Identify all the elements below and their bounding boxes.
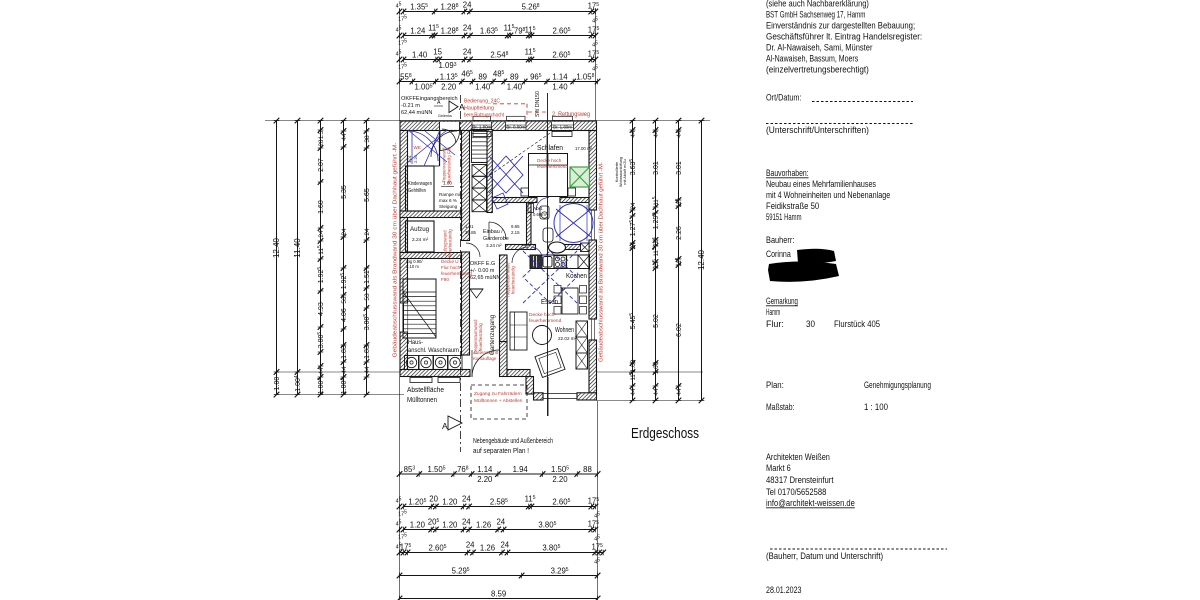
svg-text:2.15: 2.15 — [511, 230, 520, 235]
svg-text:1.20: 1.20 — [442, 497, 458, 506]
svg-text:62,44 müNN: 62,44 müNN — [401, 110, 432, 116]
svg-text:1.94: 1.94 — [513, 465, 529, 474]
svg-text:22.02 m²: 22.02 m² — [558, 336, 577, 341]
svg-text:A: A — [442, 421, 448, 431]
svg-text:feuerhemmend: feuerhemmend — [537, 164, 568, 169]
svg-text:24: 24 — [631, 242, 637, 249]
svg-text:Geschäftsführer lt. Eintrag Ha: Geschäftsführer lt. Eintrag Handelsregis… — [766, 32, 922, 43]
svg-text:Feidikstraße 50: Feidikstraße 50 — [766, 201, 819, 212]
svg-text:Decke hoch: Decke hoch — [537, 158, 562, 163]
svg-text:2.20: 2.20 — [552, 475, 568, 484]
svg-text:3.24 m²: 3.24 m² — [486, 243, 502, 248]
svg-text:3.01: 3.01 — [653, 161, 660, 175]
svg-text:(siehe auch Nachbarerklärung): (siehe auch Nachbarerklärung) — [766, 0, 869, 10]
svg-text:48317 Drensteinfurt: 48317 Drensteinfurt — [766, 475, 834, 486]
svg-text:1.26: 1.26 — [476, 520, 491, 529]
svg-text:SW DN150: SW DN150 — [535, 91, 541, 117]
svg-text:Zugang zu Fahrrädern: Zugang zu Fahrrädern — [474, 391, 522, 397]
svg-text:Einbau /: Einbau / — [483, 229, 503, 235]
svg-text:Kinderwagen: Kinderwagen — [408, 181, 432, 187]
svg-text:Essen: Essen — [541, 297, 558, 306]
svg-text:59151 Hamm: 59151 Hamm — [766, 212, 802, 223]
svg-text:A: A — [437, 100, 441, 106]
svg-text:5.65: 5.65 — [364, 188, 371, 202]
svg-text:Br. 1.80m: Br. 1.80m — [553, 125, 572, 130]
svg-text:44: 44 — [318, 367, 325, 375]
svg-text:Br. 0.80m: Br. 0.80m — [506, 125, 525, 130]
svg-text:5.35: 5.35 — [341, 185, 348, 199]
svg-text:OKFFEingangsbereich: OKFFEingangsbereich — [401, 96, 458, 102]
svg-text:Mülltonnen: Mülltonnen — [407, 395, 437, 404]
svg-text:max 6 %: max 6 % — [439, 198, 457, 203]
svg-text:feuerbeständig: feuerbeständig — [511, 265, 516, 293]
svg-text:24: 24 — [462, 494, 471, 503]
svg-text:2.26: 2.26 — [413, 154, 418, 163]
svg-text:1.26: 1.26 — [480, 543, 495, 552]
svg-text:2.24 m²: 2.24 m² — [412, 237, 429, 243]
svg-text:24: 24 — [631, 202, 637, 209]
svg-text:1.5: 1.5 — [319, 130, 325, 139]
svg-text:89: 89 — [478, 72, 487, 81]
svg-text:Tel 0170/5652588: Tel 0170/5652588 — [766, 487, 826, 498]
svg-text:3.01: 3.01 — [676, 161, 683, 175]
svg-text:Flurstück 405: Flurstück 405 — [834, 319, 880, 330]
svg-text:mit Abluft m/Zu: mit Abluft m/Zu — [623, 159, 627, 184]
svg-text:1.20: 1.20 — [410, 520, 426, 529]
svg-text:1.14: 1.14 — [552, 72, 568, 81]
svg-text:1.01: 1.01 — [407, 154, 412, 163]
svg-text:Außenauftritt: Außenauftritt — [473, 350, 499, 355]
svg-text:1.40: 1.40 — [475, 83, 491, 92]
svg-text:Decke U: Decke U — [441, 259, 459, 264]
svg-text:2.10 m: 2.10 m — [406, 264, 419, 269]
svg-text:1.20: 1.20 — [442, 520, 458, 529]
svg-text:44: 44 — [630, 388, 637, 396]
svg-text:24: 24 — [318, 230, 325, 238]
svg-text:12.40: 12.40 — [697, 249, 706, 270]
svg-text:Rampe mit: Rampe mit — [439, 192, 462, 197]
svg-text:44: 44 — [364, 366, 371, 374]
svg-text:Nebengebäude und Außenbereich: Nebengebäude und Außenbereich — [473, 436, 553, 445]
svg-text:28.01.2023: 28.01.2023 — [766, 585, 802, 596]
svg-text:Erdgeschoss: Erdgeschoss — [631, 426, 699, 442]
svg-text:44: 44 — [676, 130, 683, 138]
svg-text:Kursauflage: Kursauflage — [473, 356, 497, 361]
svg-text:feuerbeständig: feuerbeständig — [448, 228, 453, 256]
svg-text:Steigung: Steigung — [439, 204, 458, 209]
svg-text:44: 44 — [341, 366, 348, 374]
svg-text:Plan:: Plan: — [766, 380, 784, 391]
svg-text:feuerbeständig F30: feuerbeständig F30 — [447, 146, 452, 183]
svg-text:-0.21 m: -0.21 m — [401, 103, 420, 109]
svg-text:feuerbeständig: feuerbeständig — [478, 322, 483, 350]
svg-text:2.20: 2.20 — [441, 83, 457, 92]
svg-text:24: 24 — [496, 517, 505, 526]
svg-text:F90: F90 — [441, 277, 449, 282]
svg-text:Mülltonnen + Abstellen: Mülltonnen + Abstellen — [474, 398, 523, 404]
svg-text:24: 24 — [341, 228, 348, 236]
svg-text:2. Rettungsweg: 2. Rettungsweg — [552, 111, 590, 118]
svg-text:Architekten Weißen: Architekten Weißen — [766, 452, 830, 463]
svg-text:(Bauherr, Datum und Unterschri: (Bauherr, Datum und Unterschrift) — [766, 551, 883, 562]
svg-text:Flur hoch: Flur hoch — [441, 265, 461, 270]
svg-text:24: 24 — [463, 47, 472, 56]
svg-text:Br. 1.80m: Br. 1.80m — [472, 125, 491, 130]
svg-text:0.60 m²: 0.60 m² — [533, 212, 548, 217]
svg-text:24: 24 — [463, 23, 472, 32]
svg-text:44: 44 — [630, 130, 637, 138]
svg-text:62,65 müNN: 62,65 müNN — [470, 275, 500, 281]
svg-text:Gebäudeabschlusswand als Brand: Gebäudeabschlusswand als Brandwand 30 cm… — [393, 142, 399, 357]
svg-text:+/- 0.00 m: +/- 0.00 m — [470, 268, 495, 274]
svg-text:Genehmigungsplanung: Genehmigungsplanung — [864, 380, 931, 391]
svg-text:88: 88 — [583, 465, 592, 474]
svg-text:Gehhilfen: Gehhilfen — [408, 188, 426, 194]
svg-text:auf separaten Plan !: auf separaten Plan ! — [473, 446, 529, 455]
svg-text:6.02: 6.02 — [676, 323, 683, 337]
svg-text:9.85: 9.85 — [511, 224, 520, 229]
svg-text:53: 53 — [341, 296, 348, 304]
svg-text:28: 28 — [319, 139, 325, 146]
svg-text:Bauherr:: Bauherr: — [766, 235, 794, 246]
svg-text:bere Rutzugschacht: bere Rutzugschacht — [464, 113, 505, 119]
svg-text:Gebäudeabschlusswand als Brand: Gebäudeabschlusswand als Brandwand 30 cm… — [599, 162, 605, 362]
svg-text:Dr. Al-Nawaiseh, Sami, Münster: Dr. Al-Nawaiseh, Sami, Münster — [766, 43, 873, 54]
svg-text:Corinna: Corinna — [766, 249, 791, 260]
svg-text:Hamm: Hamm — [766, 307, 780, 318]
svg-text:Al-Nawaiseh, Bassum, Moers: Al-Nawaiseh, Bassum, Moers — [766, 54, 858, 65]
svg-text:12.40: 12.40 — [272, 237, 281, 258]
svg-text:1.60: 1.60 — [318, 200, 325, 214]
svg-text:1.83: 1.83 — [341, 345, 348, 359]
svg-text:2.07: 2.07 — [318, 158, 325, 172]
svg-text:11.40: 11.40 — [293, 238, 302, 258]
svg-text:Ort/Datum:: Ort/Datum: — [766, 93, 802, 104]
svg-text:Hauptleitung: Hauptleitung — [464, 106, 494, 112]
svg-text:Abst.: Abst. — [533, 206, 543, 211]
svg-text:44: 44 — [653, 130, 660, 138]
svg-text:1.40: 1.40 — [507, 83, 523, 92]
svg-text:(Unterschrift/Unterschriften): (Unterschrift/Unterschriften) — [766, 125, 869, 136]
svg-text:24: 24 — [364, 228, 371, 236]
svg-text:anschl. Waschraum: anschl. Waschraum — [408, 347, 459, 354]
svg-text:1.40: 1.40 — [412, 50, 428, 59]
svg-text:1.24: 1.24 — [410, 26, 426, 35]
svg-text:Einverständnis zur dargestellt: Einverständnis zur dargestellten Bebauun… — [766, 21, 915, 32]
svg-text:1.01: 1.01 — [465, 224, 474, 229]
svg-text:24: 24 — [500, 540, 509, 549]
svg-text:2.20: 2.20 — [477, 475, 493, 484]
svg-text:24: 24 — [463, 0, 472, 9]
svg-text:Maßstab:: Maßstab: — [766, 402, 794, 413]
svg-text:Schlafen: Schlafen — [537, 143, 563, 152]
svg-text:1.51: 1.51 — [364, 270, 371, 284]
svg-text:1.40: 1.40 — [552, 83, 568, 92]
svg-text:feuerhemmend: feuerhemmend — [441, 271, 472, 276]
svg-text:44: 44 — [341, 133, 348, 141]
svg-text:30: 30 — [806, 319, 815, 330]
svg-text:Wohnen: Wohnen — [555, 325, 574, 334]
svg-text:1 : 100: 1 : 100 — [864, 402, 888, 413]
svg-text:WE: WE — [414, 145, 421, 150]
svg-text:Aufzug: Aufzug — [410, 226, 430, 233]
svg-text:Haus-: Haus- — [408, 339, 423, 346]
svg-text:(einzelvertretungsberechtigt): (einzelvertretungsberechtigt) — [766, 65, 869, 76]
svg-text:1.00: 1.00 — [274, 377, 281, 391]
svg-text:Abstellfläche: Abstellfläche — [407, 385, 444, 394]
svg-text:15: 15 — [433, 47, 442, 56]
svg-text:53: 53 — [364, 293, 371, 301]
svg-text:17.00 m²: 17.00 m² — [575, 146, 592, 152]
svg-text:1.83: 1.83 — [364, 345, 371, 359]
svg-text:2.26: 2.26 — [676, 226, 683, 240]
svg-text:8.59: 8.59 — [491, 589, 506, 598]
svg-text:24: 24 — [462, 517, 471, 526]
svg-text:1.14: 1.14 — [477, 465, 493, 474]
svg-text:feuerhemmend: feuerhemmend — [529, 318, 562, 324]
svg-text:89: 89 — [510, 72, 519, 81]
svg-text:36.85: 36.85 — [465, 230, 477, 235]
svg-text:5.02: 5.02 — [653, 314, 660, 328]
svg-text:24: 24 — [466, 540, 475, 549]
svg-text:1.00: 1.00 — [630, 359, 637, 372]
svg-text:44: 44 — [676, 388, 683, 396]
svg-text:Kochen: Kochen — [566, 271, 587, 280]
svg-text:mit 4 Wohneinheiten und Nebena: mit 4 Wohneinheiten und Nebenanlage — [766, 190, 890, 201]
svg-text:4.06: 4.06 — [341, 308, 348, 322]
svg-text:BST GmbH Sachsenweg 17, Hamm: BST GmbH Sachsenweg 17, Hamm — [766, 10, 865, 21]
svg-text:44: 44 — [653, 388, 660, 396]
svg-text:4.93: 4.93 — [318, 302, 325, 316]
svg-text:OKFF E.G: OKFF E.G — [470, 261, 495, 267]
svg-text:38: 38 — [364, 135, 371, 143]
svg-text:Garderobe: Garderobe — [483, 236, 509, 242]
svg-text:20: 20 — [429, 494, 438, 503]
svg-text:Markt 6: Markt 6 — [766, 463, 791, 474]
svg-text:Flur:: Flur: — [766, 319, 784, 330]
svg-text:Decke hoch-: Decke hoch- — [529, 312, 556, 318]
svg-text:Gelenks: Gelenks — [438, 114, 452, 118]
svg-text:1.00: 1.00 — [653, 361, 660, 374]
svg-text:Neubau eines Mehrfamilienhause: Neubau eines Mehrfamilienhauses — [766, 179, 876, 190]
